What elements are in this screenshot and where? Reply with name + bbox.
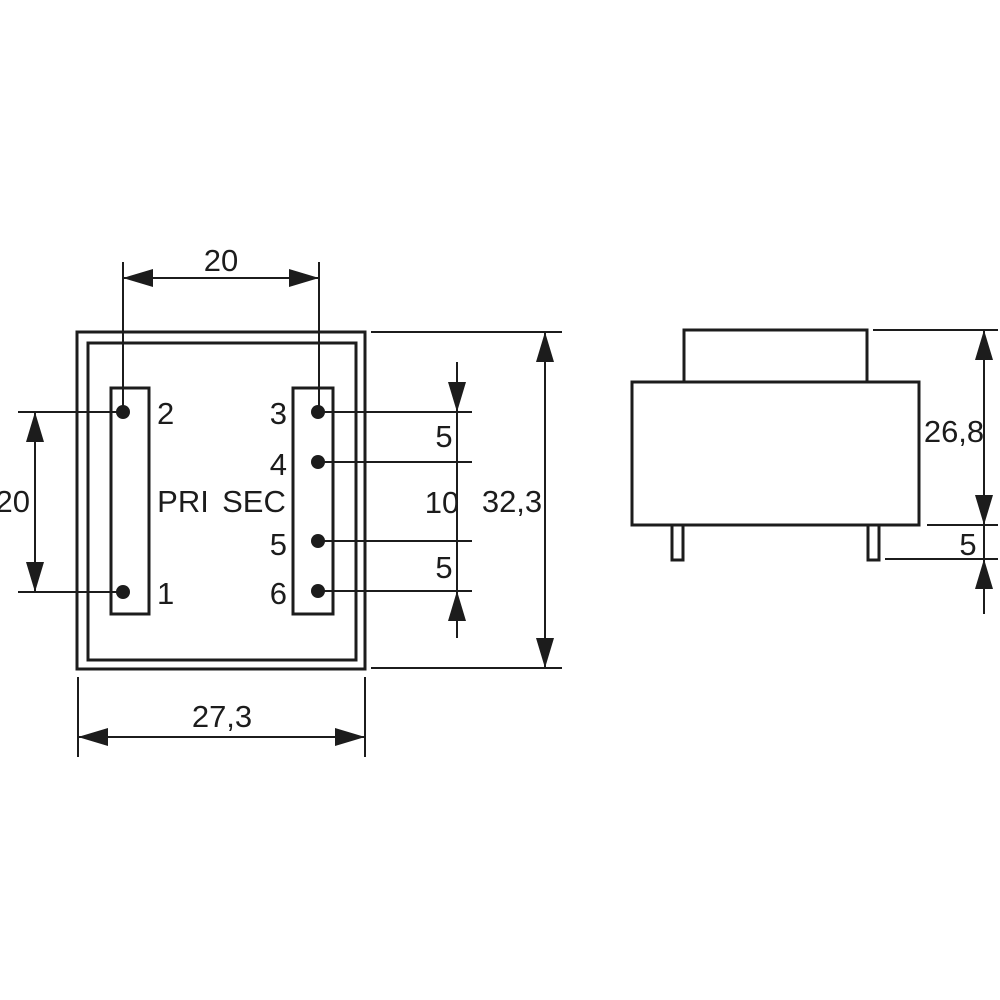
pin2-dot <box>116 405 130 419</box>
dim-label-side-height: 26,8 <box>924 414 984 449</box>
arrow-up-icon <box>26 412 44 442</box>
dim-label-sec-pitch-5-6: 5 <box>435 550 452 585</box>
pin3-dot <box>311 405 325 419</box>
dim-body-width: 27,3 <box>78 677 365 757</box>
dim-label-body-width: 27,3 <box>192 699 252 734</box>
arrow-down-icon <box>26 562 44 592</box>
pin1-dot <box>116 585 130 599</box>
pin4-label: 4 <box>270 447 287 482</box>
side-view-left-pin <box>672 525 683 560</box>
dim-body-depth: 32,3 <box>371 332 562 668</box>
pin6-label: 6 <box>270 576 287 611</box>
arrow-down-icon <box>975 495 993 525</box>
sec-pin-strip <box>293 388 333 614</box>
dim-label-body-depth: 32,3 <box>482 484 542 519</box>
top-view <box>77 332 365 669</box>
pin4-dot <box>311 455 325 469</box>
pri-winding-label: PRI <box>157 484 209 519</box>
arrow-up-icon <box>536 332 554 362</box>
side-view <box>632 330 919 560</box>
pin2-label: 2 <box>157 396 174 431</box>
dim-label-sec-pitch-4-5: 10 <box>425 485 459 520</box>
side-view-core-hump <box>684 330 867 382</box>
drawing-canvas: 2 1 3 4 5 6 PRI SEC 20 20 <box>0 0 1000 1000</box>
arrow-left-icon <box>78 728 108 746</box>
dim-label-pri-pin-pitch: 20 <box>0 484 30 519</box>
dim-pri-pin-pitch: 20 <box>0 412 44 592</box>
side-view-right-pin <box>868 525 879 560</box>
dim-label-sec-pitch-3-4: 5 <box>435 419 452 454</box>
arrow-down-icon <box>448 382 466 412</box>
arrow-up-icon <box>975 330 993 360</box>
dim-label-side-pin-length: 5 <box>959 527 976 562</box>
pri-pin-strip <box>111 388 149 614</box>
pin3-label: 3 <box>270 396 287 431</box>
pin1-label: 1 <box>157 576 174 611</box>
pin5-label: 5 <box>270 527 287 562</box>
pin5-dot <box>311 534 325 548</box>
dim-label-pin-column-spacing: 20 <box>204 243 238 278</box>
arrow-right-icon <box>335 728 365 746</box>
dim-sec-pin-pitches: 5 10 5 <box>425 362 466 638</box>
arrow-down-icon <box>536 638 554 668</box>
arrow-up-icon <box>448 591 466 621</box>
dimensional-drawing: 2 1 3 4 5 6 PRI SEC 20 20 <box>0 0 1000 1000</box>
arrow-right-icon <box>289 269 319 287</box>
side-view-body <box>632 382 919 525</box>
sec-winding-label: SEC <box>222 484 286 519</box>
arrow-up-icon <box>975 559 993 589</box>
arrow-left-icon <box>123 269 153 287</box>
pin6-dot <box>311 584 325 598</box>
